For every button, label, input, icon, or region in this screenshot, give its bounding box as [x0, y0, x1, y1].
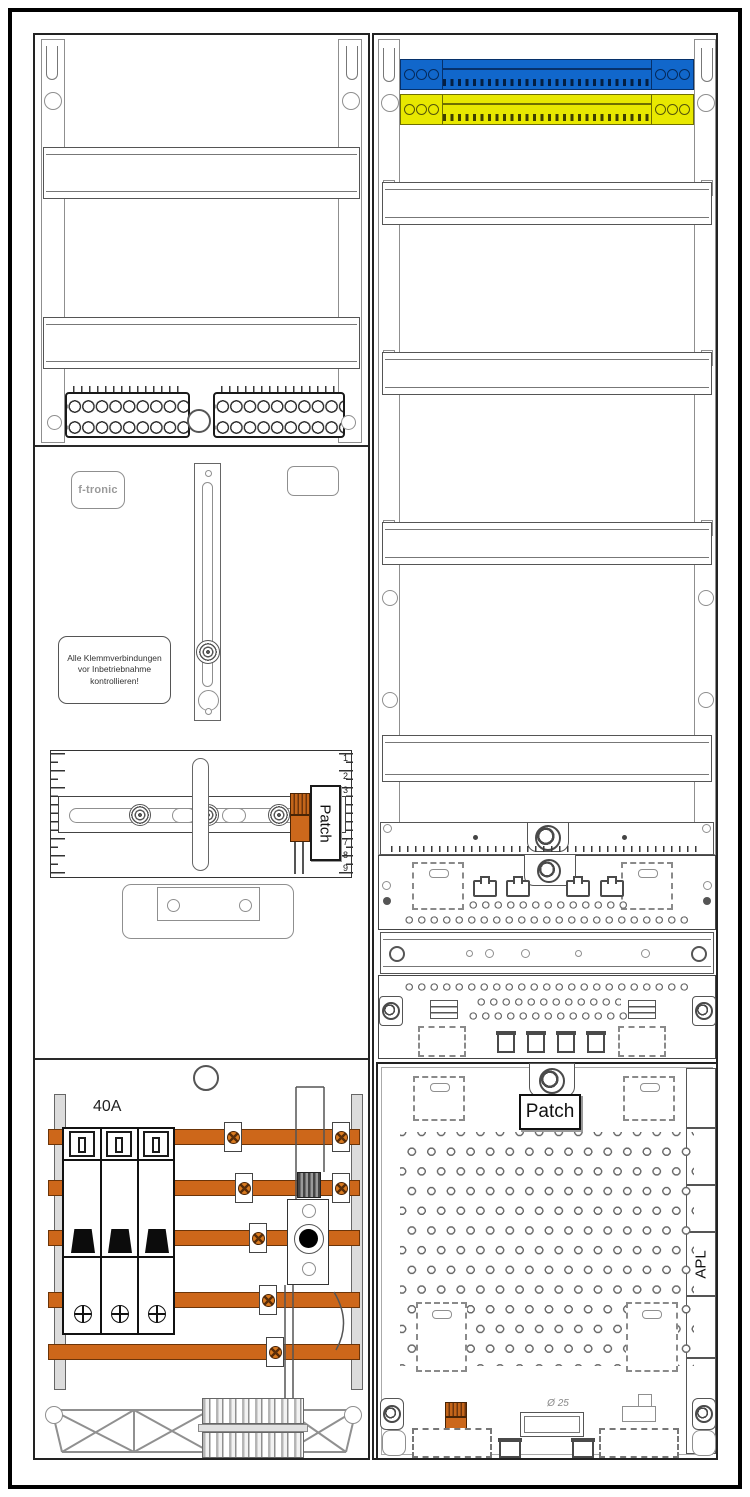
cap-hole: [428, 104, 439, 115]
phillips-screw-icon: [111, 1305, 129, 1323]
rail-hole: [44, 92, 62, 110]
cable-clamp: [587, 1031, 605, 1053]
terminal-screw-icon: [335, 1182, 348, 1195]
patch-label: Patch: [519, 1094, 581, 1130]
cap-hole: [428, 69, 439, 80]
screw-housing: [379, 996, 403, 1026]
rail-hole: [341, 415, 356, 430]
corner-foot: [692, 1430, 716, 1456]
edge-rivet: [383, 897, 391, 905]
terminal-screw-icon: [238, 1182, 251, 1195]
warning-label: Alle Klemmverbindungen vor Inbetriebnahm…: [58, 636, 171, 704]
busbar-teeth: [443, 79, 651, 86]
device-hole: [302, 1262, 316, 1276]
vent-hole-row: [475, 997, 621, 1007]
busbar-teeth: [443, 114, 651, 121]
cap-hole: [416, 104, 427, 115]
vent-hole-row: [403, 982, 690, 992]
cap-hole: [679, 69, 690, 80]
cap-hole: [404, 69, 415, 80]
cable-clamp: [497, 1031, 515, 1053]
quarter-turn-screw-icon: [695, 1002, 713, 1020]
slotted-screw-icon: [196, 640, 220, 664]
side-rail-right: [338, 39, 362, 443]
rivet: [473, 835, 478, 840]
cable-clamp: [557, 1031, 575, 1053]
rail-slot: [701, 48, 713, 82]
knockout-rect: [520, 1412, 584, 1437]
rail-hole: [382, 692, 398, 708]
cap-hole: [655, 69, 666, 80]
patch-label-vertical: Patch: [310, 785, 341, 861]
vent-hole-row: [403, 915, 690, 925]
patch-connector-orange: [445, 1402, 467, 1417]
edge-rivet: [703, 897, 711, 905]
breaker-handle: [71, 1229, 95, 1253]
patch-label-text: Patch: [317, 804, 334, 842]
bottom-cutout: [412, 1428, 492, 1458]
surge-device: [287, 1199, 329, 1285]
rj45-jack: [506, 880, 530, 897]
rail-slot: [383, 48, 395, 82]
busbar-terminal: [332, 1173, 350, 1203]
terminal-screw-icon: [269, 1346, 282, 1359]
edge-segment: [686, 1068, 716, 1128]
rail-hole: [342, 92, 360, 110]
rivet: [622, 835, 627, 840]
handle-hole: [167, 899, 180, 912]
din-rail: [382, 735, 712, 782]
rail-hole: [521, 949, 530, 958]
din-rail: [382, 522, 712, 565]
rail-hole: [698, 590, 714, 606]
grip-handle-inner: [157, 887, 260, 921]
rail-hole: [485, 949, 494, 958]
ruler-number: 2: [333, 772, 348, 781]
din-rail: [43, 147, 360, 199]
busbar-end-cap: [401, 95, 443, 124]
rail-slot: [46, 46, 58, 80]
vertical-slot: [192, 758, 209, 871]
busbar-terminal: [266, 1337, 284, 1367]
busbar-terminal: [235, 1173, 253, 1203]
grip-handle: [122, 884, 294, 939]
quarter-turn-screw-icon: [539, 1068, 565, 1094]
knockout-cutout: [418, 1026, 466, 1057]
cable-clamp: [499, 1438, 521, 1458]
terminal-block-teeth: [73, 386, 182, 392]
breaker-line: [64, 1256, 173, 1258]
cap-hole: [667, 104, 678, 115]
device-knob-center: [299, 1229, 318, 1248]
mount-hole: [205, 708, 212, 715]
corner-hole: [45, 1406, 63, 1424]
mounting-bracket-panel: Patch 1 2 3 7 8 9: [50, 750, 352, 878]
cutout-handle: [640, 1083, 660, 1092]
terminal-block: [213, 392, 345, 438]
keyhole: [389, 946, 405, 962]
rj45-jack: [566, 880, 590, 897]
mount-hole: [205, 470, 212, 477]
breaker-field: 40A: [35, 1060, 368, 1460]
rail-hole: [466, 950, 473, 957]
brand-logo: f-tronic: [71, 471, 125, 509]
quarter-turn-screw-icon: [537, 859, 561, 883]
cable-clamp: [527, 1031, 545, 1053]
device-knob: [294, 1224, 324, 1254]
meter-mount-bar: [194, 463, 221, 721]
breaker-handle: [145, 1229, 169, 1253]
edge-hole: [703, 881, 712, 890]
busbar-terminal: [332, 1122, 350, 1152]
rail-hole: [697, 94, 715, 112]
knockout-diameter-label: Ø 25: [528, 1398, 588, 1409]
corner-screw-housing: [692, 1398, 716, 1430]
apl-label-text: APL: [693, 1250, 710, 1278]
cutout-handle: [638, 869, 658, 878]
cutout-handle: [432, 1310, 452, 1319]
apl-panel: APL Patch: [376, 1062, 718, 1460]
terminal-screw-icon: [227, 1131, 240, 1144]
cable-hole: [187, 409, 211, 433]
knockout-cutout-portrait: [416, 1302, 467, 1372]
slot-end: [222, 808, 246, 823]
keyhole: [691, 946, 707, 962]
side-rail-left: [378, 39, 400, 855]
ruler-number: 8: [333, 851, 348, 860]
busbar-terminal: [249, 1223, 267, 1253]
warning-line: vor Inbetriebnahme: [78, 664, 151, 675]
ruler-number: 1: [333, 754, 348, 763]
terminal-clip: [143, 1131, 169, 1157]
warning-line: Alle Klemmverbindungen: [67, 653, 162, 664]
bottom-cutout: [599, 1428, 679, 1458]
device-hole: [302, 1204, 316, 1218]
rj45-jack: [473, 880, 497, 897]
rail-hole: [641, 949, 650, 958]
slotted-screw-icon: [268, 804, 290, 826]
step-bracket-base: [622, 1406, 656, 1422]
wire: [294, 842, 296, 874]
vent-hole-row: [467, 900, 629, 910]
brand-logo-label: f-tronic: [78, 484, 117, 496]
blank-plate: [287, 466, 339, 496]
neutral-busbar-blue: [400, 59, 694, 90]
busbar-terminal: [224, 1122, 242, 1152]
multimedia-module-bottom: [378, 975, 716, 1059]
terminal-clip: [106, 1131, 132, 1157]
cover-strip: [380, 822, 714, 855]
rail-hole: [575, 950, 582, 957]
corner-foot: [382, 1430, 406, 1456]
cutout-handle: [642, 1310, 662, 1319]
side-rail-left: [41, 39, 65, 443]
corner-screw-housing: [380, 1398, 404, 1430]
knockout-cutout: [623, 1076, 675, 1121]
cable-comb-terminal: [202, 1398, 304, 1424]
left-column: f-tronic Alle Klemmverbindungen vor Inbe…: [33, 33, 370, 1460]
slotted-screw-icon: [129, 804, 151, 826]
multimedia-module-top: [378, 855, 716, 930]
ruler-number: 9: [333, 864, 348, 873]
rail-hole: [382, 590, 398, 606]
cutout-handle: [429, 869, 449, 878]
rail-slot: [346, 46, 358, 80]
phillips-screw-icon: [148, 1305, 166, 1323]
pe-busbar-yellow: [400, 94, 694, 125]
rail-hole: [47, 415, 62, 430]
cap-hole: [655, 104, 666, 115]
cable-clamp: [572, 1438, 594, 1458]
handle-hole: [239, 899, 252, 912]
edge-hole: [383, 824, 392, 833]
edge-hole: [702, 824, 711, 833]
right-column: APL Patch: [372, 33, 718, 1460]
patch-label-text: Patch: [526, 1101, 575, 1123]
din-rail: [43, 317, 360, 369]
cabinet-drawing: f-tronic Alle Klemmverbindungen vor Inbe…: [0, 0, 750, 1497]
knockout-cutout-portrait: [626, 1302, 678, 1372]
busbar-ridge: [443, 103, 651, 105]
din-rail: [382, 352, 712, 395]
busbar-end-cap: [401, 60, 443, 89]
patch-connector-orange: [290, 793, 310, 815]
phillips-screw-icon: [74, 1305, 92, 1323]
ruler-number: 7: [333, 838, 348, 847]
mount-rail-strip: [380, 932, 714, 974]
meter-panel: f-tronic Alle Klemmverbindungen vor Inbe…: [35, 447, 368, 1060]
busbar-end-cap: [651, 60, 693, 89]
busbar-ridge: [443, 68, 651, 70]
terminal-clip: [69, 1131, 95, 1157]
ruler-number: 3: [333, 786, 348, 795]
side-rail-right: [694, 39, 716, 855]
main-breaker-3pole: [62, 1127, 175, 1335]
warning-line: kontrollieren!: [90, 676, 139, 687]
corner-hole: [344, 1406, 362, 1424]
rail-hole: [698, 692, 714, 708]
patch-connector-body: [290, 815, 310, 842]
screw-housing: [692, 996, 716, 1026]
terminal-screw-icon: [262, 1294, 275, 1307]
knockout-cutout: [413, 1076, 465, 1121]
din-rail: [382, 182, 712, 225]
bracket-plate: [628, 1000, 656, 1019]
rail-hole: [381, 94, 399, 112]
edge-hole: [382, 881, 391, 890]
cable-clamp-dark: [297, 1172, 321, 1198]
breaker-handle: [108, 1229, 132, 1253]
busbar-end-cap: [651, 95, 693, 124]
cable-comb-terminal: [202, 1432, 304, 1458]
wire: [302, 842, 304, 874]
bracket-plate: [430, 1000, 458, 1019]
cap-hole: [667, 69, 678, 80]
terminal-block: [65, 392, 190, 438]
breaker-line: [64, 1159, 173, 1161]
quarter-turn-screw-icon: [383, 1405, 401, 1423]
quarter-turn-screw-icon: [695, 1405, 713, 1423]
cap-hole: [404, 104, 415, 115]
rj45-jack: [600, 880, 624, 897]
terminal-block-teeth: [221, 386, 337, 392]
quarter-turn-screw-icon: [382, 1002, 400, 1020]
terminal-screw-icon: [335, 1131, 348, 1144]
knockout-cutout: [412, 862, 464, 910]
vent-hole-row: [467, 1011, 629, 1021]
cap-hole: [679, 104, 690, 115]
knockout-cutout: [618, 1026, 666, 1057]
comb-center-bar: [198, 1424, 308, 1432]
strip-teeth: [391, 846, 703, 852]
left-top-field: [35, 35, 368, 447]
terminal-screw-icon: [252, 1232, 265, 1245]
knockout-rect-inner: [524, 1416, 580, 1433]
cutout-handle: [430, 1083, 450, 1092]
cap-hole: [416, 69, 427, 80]
busbar-terminal: [259, 1285, 277, 1315]
